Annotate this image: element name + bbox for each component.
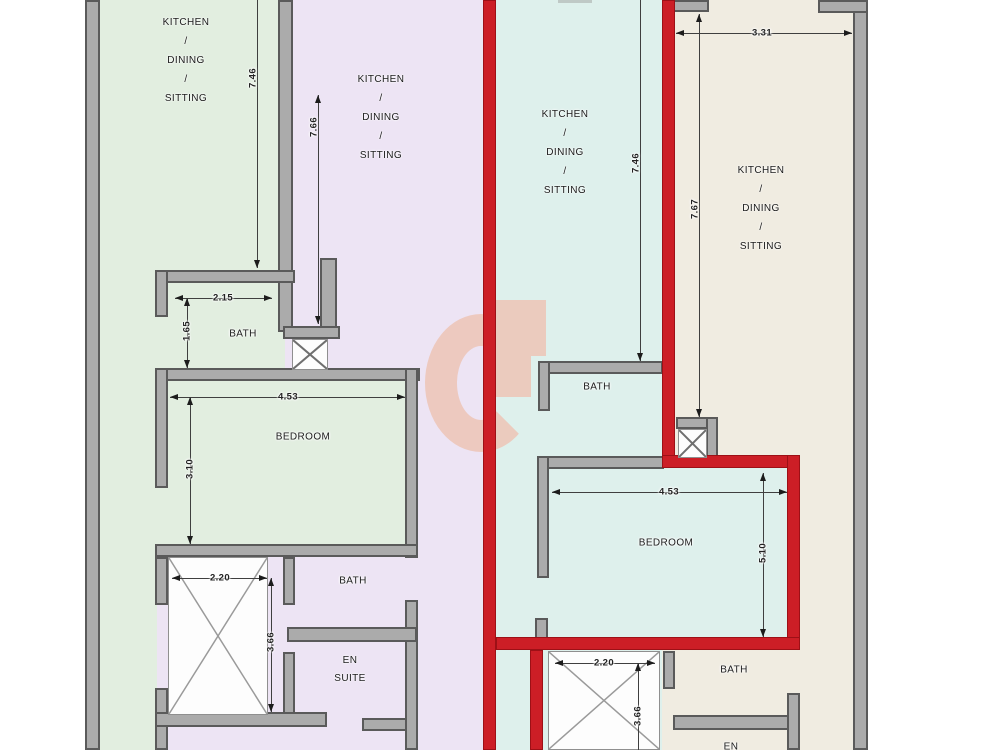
red-boundary-shaft-left: [530, 650, 543, 750]
dim-arrow: [760, 473, 766, 481]
room-label-line: KITCHEN: [163, 13, 210, 32]
room-label-line: DINING: [542, 143, 589, 162]
dim-arrow: [397, 394, 405, 400]
room-label-line: DINING: [163, 51, 210, 70]
red-boundary-left: [483, 0, 496, 750]
room-label-line: EN: [334, 652, 365, 670]
wall-bedroom3-top: [537, 456, 664, 469]
lift-shaft: [678, 429, 707, 458]
dim-arrow: [187, 397, 193, 405]
room-label-line: /: [738, 180, 785, 199]
room-label-line: /: [358, 127, 405, 146]
lift-shaft: [292, 339, 328, 370]
dimension-label: 7.66: [309, 117, 320, 137]
dim-arrow: [555, 660, 563, 666]
dim-arrow: [552, 489, 560, 495]
red-boundary-right-upper: [662, 0, 675, 460]
dim-arrow: [268, 578, 274, 586]
wall-shaft2-right-lower: [283, 652, 295, 715]
wall-bedroom1-right: [405, 368, 418, 558]
room-label-line: /: [738, 218, 785, 237]
wall-bath3-top: [538, 361, 663, 374]
dimension-label: 7.67: [690, 199, 701, 219]
dim-arrow: [264, 295, 272, 301]
dimension-label: 3.66: [633, 706, 644, 726]
wall-bedroom3-left: [537, 456, 549, 578]
room-label-line: SITTING: [358, 146, 405, 165]
wall-bedroom1-left: [155, 368, 168, 488]
room-label-line: KITCHEN: [542, 105, 589, 124]
wall-bath3-left: [538, 361, 550, 411]
wall-bath2-ensuite-divider: [287, 627, 417, 642]
wall-piece: [787, 693, 800, 750]
dim-arrow: [637, 353, 643, 361]
unit3-background: [660, 460, 788, 650]
room-label-line: /: [163, 32, 210, 51]
watermark-block: [488, 300, 546, 356]
dimension-label: 3.10: [185, 459, 196, 479]
room-label-line: SITTING: [738, 237, 785, 256]
dim-arrow: [647, 660, 655, 666]
dimension-label: 7.46: [631, 153, 642, 173]
room-label-line: /: [163, 70, 210, 89]
room-label-kitchen-unit2: KITCHEN / DINING / SITTING: [358, 70, 405, 165]
dimension-label: 3.31: [752, 28, 772, 39]
dimension-label: 4.53: [278, 392, 298, 403]
wall-stub: [320, 258, 337, 332]
outer-wall-top: [673, 0, 709, 12]
dim-arrow: [170, 394, 178, 400]
dim-arrow: [254, 260, 260, 268]
red-boundary-bedroom-right: [787, 455, 800, 650]
room-label-ensuite-unit4-partial: EN: [724, 742, 739, 750]
dim-arrow: [187, 536, 193, 544]
dim-arrow: [635, 663, 641, 671]
outer-wall-top-right: [818, 0, 868, 13]
red-boundary-bottom: [496, 637, 800, 650]
wall-stub: [155, 270, 168, 317]
wall-bath4-ensuite-divider: [673, 715, 798, 730]
room-label-line: DINING: [738, 199, 785, 218]
room-label-bath-unit1: BATH: [229, 329, 257, 340]
room-label-kitchen-unit4: KITCHEN / DINING / SITTING: [738, 161, 785, 256]
clipped-dimension-mark: [558, 0, 592, 3]
dim-arrow: [696, 14, 702, 22]
room-label-line: /: [542, 124, 589, 143]
outer-wall-left: [85, 0, 100, 750]
dimension-label: 5.10: [758, 543, 769, 563]
wall-piece: [362, 718, 407, 731]
unit1-background: [100, 557, 157, 750]
wall-bedroom1-top: [155, 368, 420, 381]
dim-arrow: [184, 360, 190, 368]
room-label-line: SUITE: [334, 670, 365, 688]
room-label-bedroom-unit3: BEDROOM: [639, 538, 693, 549]
room-label-line: DINING: [358, 108, 405, 127]
room-label-bath-unit3: BATH: [583, 382, 611, 393]
room-label-kitchen-unit3: KITCHEN / DINING / SITTING: [542, 105, 589, 200]
outer-wall-right: [853, 0, 868, 750]
dim-arrow: [172, 575, 180, 581]
room-label-line: SITTING: [542, 181, 589, 200]
floor-plan-canvas: 7.46 7.66 7.46 7.67 3.31 2.15 1.65 4.53 …: [0, 0, 1000, 750]
dim-arrow: [268, 704, 274, 712]
wall-bedroom1-bottom: [155, 544, 418, 557]
room-label-bedroom-unit1: BEDROOM: [276, 432, 330, 443]
room-label-line: KITCHEN: [358, 70, 405, 89]
dim-arrow: [760, 629, 766, 637]
dim-arrow: [779, 489, 787, 495]
dim-arrow: [184, 298, 190, 306]
room-label-line: /: [542, 162, 589, 181]
dimension-label: 7.46: [248, 68, 259, 88]
dimension-label: 2.20: [210, 573, 230, 584]
dimension-line: [257, 0, 258, 268]
unit1-background: [100, 370, 417, 557]
dimension-label: 2.15: [213, 293, 233, 304]
dimension-label: 1.65: [182, 321, 193, 341]
dim-arrow: [175, 295, 183, 301]
dim-arrow: [844, 30, 852, 36]
wall-shaft1-top: [283, 326, 340, 339]
room-label-bath-unit2: BATH: [339, 576, 367, 587]
room-label-line: /: [358, 89, 405, 108]
dimension-line: [640, 0, 641, 361]
room-label-line: KITCHEN: [738, 161, 785, 180]
dimension-label: 4.53: [659, 487, 679, 498]
wall-shaft2-right-upper: [283, 557, 295, 605]
wall-stub: [155, 557, 168, 605]
dim-arrow: [259, 575, 267, 581]
room-label-ensuite-unit2: EN SUITE: [334, 652, 365, 688]
room-label-bath-unit4: BATH: [720, 665, 748, 676]
dim-arrow: [315, 95, 321, 103]
room-label-line: SITTING: [163, 89, 210, 108]
dim-arrow: [696, 409, 702, 417]
wall-shaft4-right: [663, 651, 675, 689]
dimension-label: 3.66: [266, 632, 277, 652]
wall-kitchen1-bottom: [155, 270, 295, 283]
dim-arrow: [676, 30, 684, 36]
dimension-label: 2.20: [594, 658, 614, 669]
room-label-kitchen-unit1: KITCHEN / DINING / SITTING: [163, 13, 210, 108]
